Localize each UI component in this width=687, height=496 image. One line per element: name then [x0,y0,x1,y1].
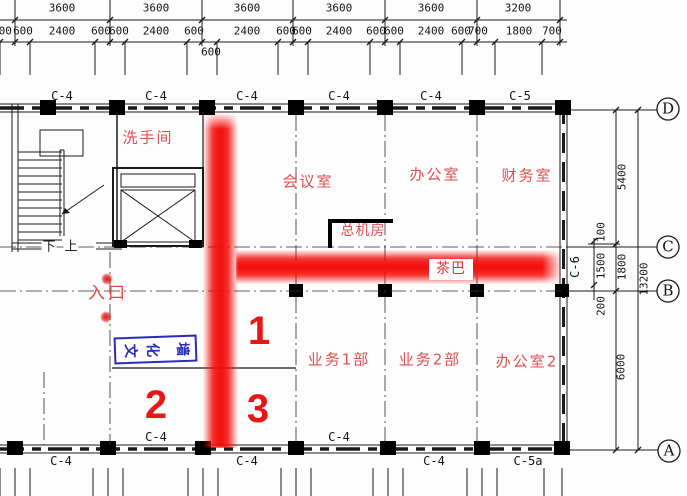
room-label-switchboard: 总机房 [341,224,386,238]
dim-label: 600 [366,26,386,37]
wall-type-label: C-4 [145,90,167,102]
room-label-meeting: 会议室 [282,175,333,190]
dim-label: 600 [292,26,312,37]
room-label-sales2: 业务2部 [399,353,462,368]
wall-type-label: C-4 [50,455,72,467]
wall-type-label: C-4 [328,90,350,102]
dim-label: 3600 [49,3,76,14]
zone-number-1: 1 [248,311,270,351]
culture-wall-char: 文 [123,343,137,357]
dim-label: 6000 [616,354,627,381]
floor-plan-canvas: 3600 3600 3600 3600 3600 3200 600 600 24… [0,0,687,496]
stair-down-label: 下 [41,241,56,254]
dim-label: 100 [596,222,607,242]
plan-linework [0,0,687,496]
elevator [113,168,203,248]
top-dimension-lines [0,0,567,75]
dim-label: 3600 [418,3,445,14]
dim-label: 2400 [418,26,445,37]
dim-label: 2400 [143,26,170,37]
wall-type-label: C-4 [328,431,350,443]
dim-label: 600 [384,26,404,37]
wall-type-label: C-4 [236,90,258,102]
dim-label: 600 [109,26,129,37]
dim-label: 3600 [143,3,170,14]
dim-label: 600 [201,47,221,58]
grid-marker-b: B [662,284,673,299]
stair-up-label: 上 [63,241,78,254]
grid-marker-c: C [662,240,673,255]
room-label-teabar: 茶巴 [429,259,473,280]
room-label-office2: 办公室2 [496,355,559,370]
wall-type-label: C-4 [423,455,445,467]
wall-type-label: C-4 [236,455,258,467]
dim-label: 2400 [49,26,76,37]
dim-label: 13200 [639,262,650,295]
dim-label: 600 [13,26,33,37]
dim-label: 3600 [326,3,353,14]
wall-type-label: C-6 [569,256,581,278]
dim-label: 700 [468,26,488,37]
dim-label: 700 [542,26,562,37]
entrance-label: 入口 [88,286,128,303]
dim-label: 2400 [234,26,261,37]
dim-label: 5400 [617,164,628,191]
dim-label: 600 [91,26,111,37]
culture-wall-sign: 文 化 墙 [114,335,198,365]
dim-label: 200 [596,296,607,316]
dim-label: 1800 [506,26,533,37]
wall-type-label: C-5 [509,90,531,102]
wall-type-label: C-4 [145,431,167,443]
dim-label: 1500 [596,253,607,280]
bottom-extension-ticks [0,468,562,496]
dim-label: 3600 [234,3,261,14]
dim-label: 3200 [505,3,532,14]
staircase [12,130,122,249]
culture-wall-char: 化 [145,342,159,356]
zone-number-2: 2 [145,385,167,425]
highlight-vertical-corridor [203,113,238,448]
dim-label: 2400 [326,26,353,37]
room-label-restroom: 洗手间 [122,131,173,146]
room-label-finance: 财务室 [501,169,552,184]
wall-type-label: C-4 [51,90,73,102]
grid-marker-d: D [662,102,674,117]
wall-type-label: C-5a [514,455,543,467]
culture-wall-char: 墙 [175,341,189,355]
zone-number-3: 3 [247,389,269,429]
room-label-office: 办公室 [409,168,460,183]
entrance-dot-lower [100,311,112,323]
highlight-horizontal-corridor [236,250,562,284]
dim-label: 1800 [617,254,628,281]
dim-label: 600 [184,26,204,37]
dim-label: 600 [0,26,12,37]
wall-type-label: C-4 [420,90,442,102]
room-label-sales1: 业务1部 [308,353,371,368]
grid-marker-a: A [664,444,675,459]
